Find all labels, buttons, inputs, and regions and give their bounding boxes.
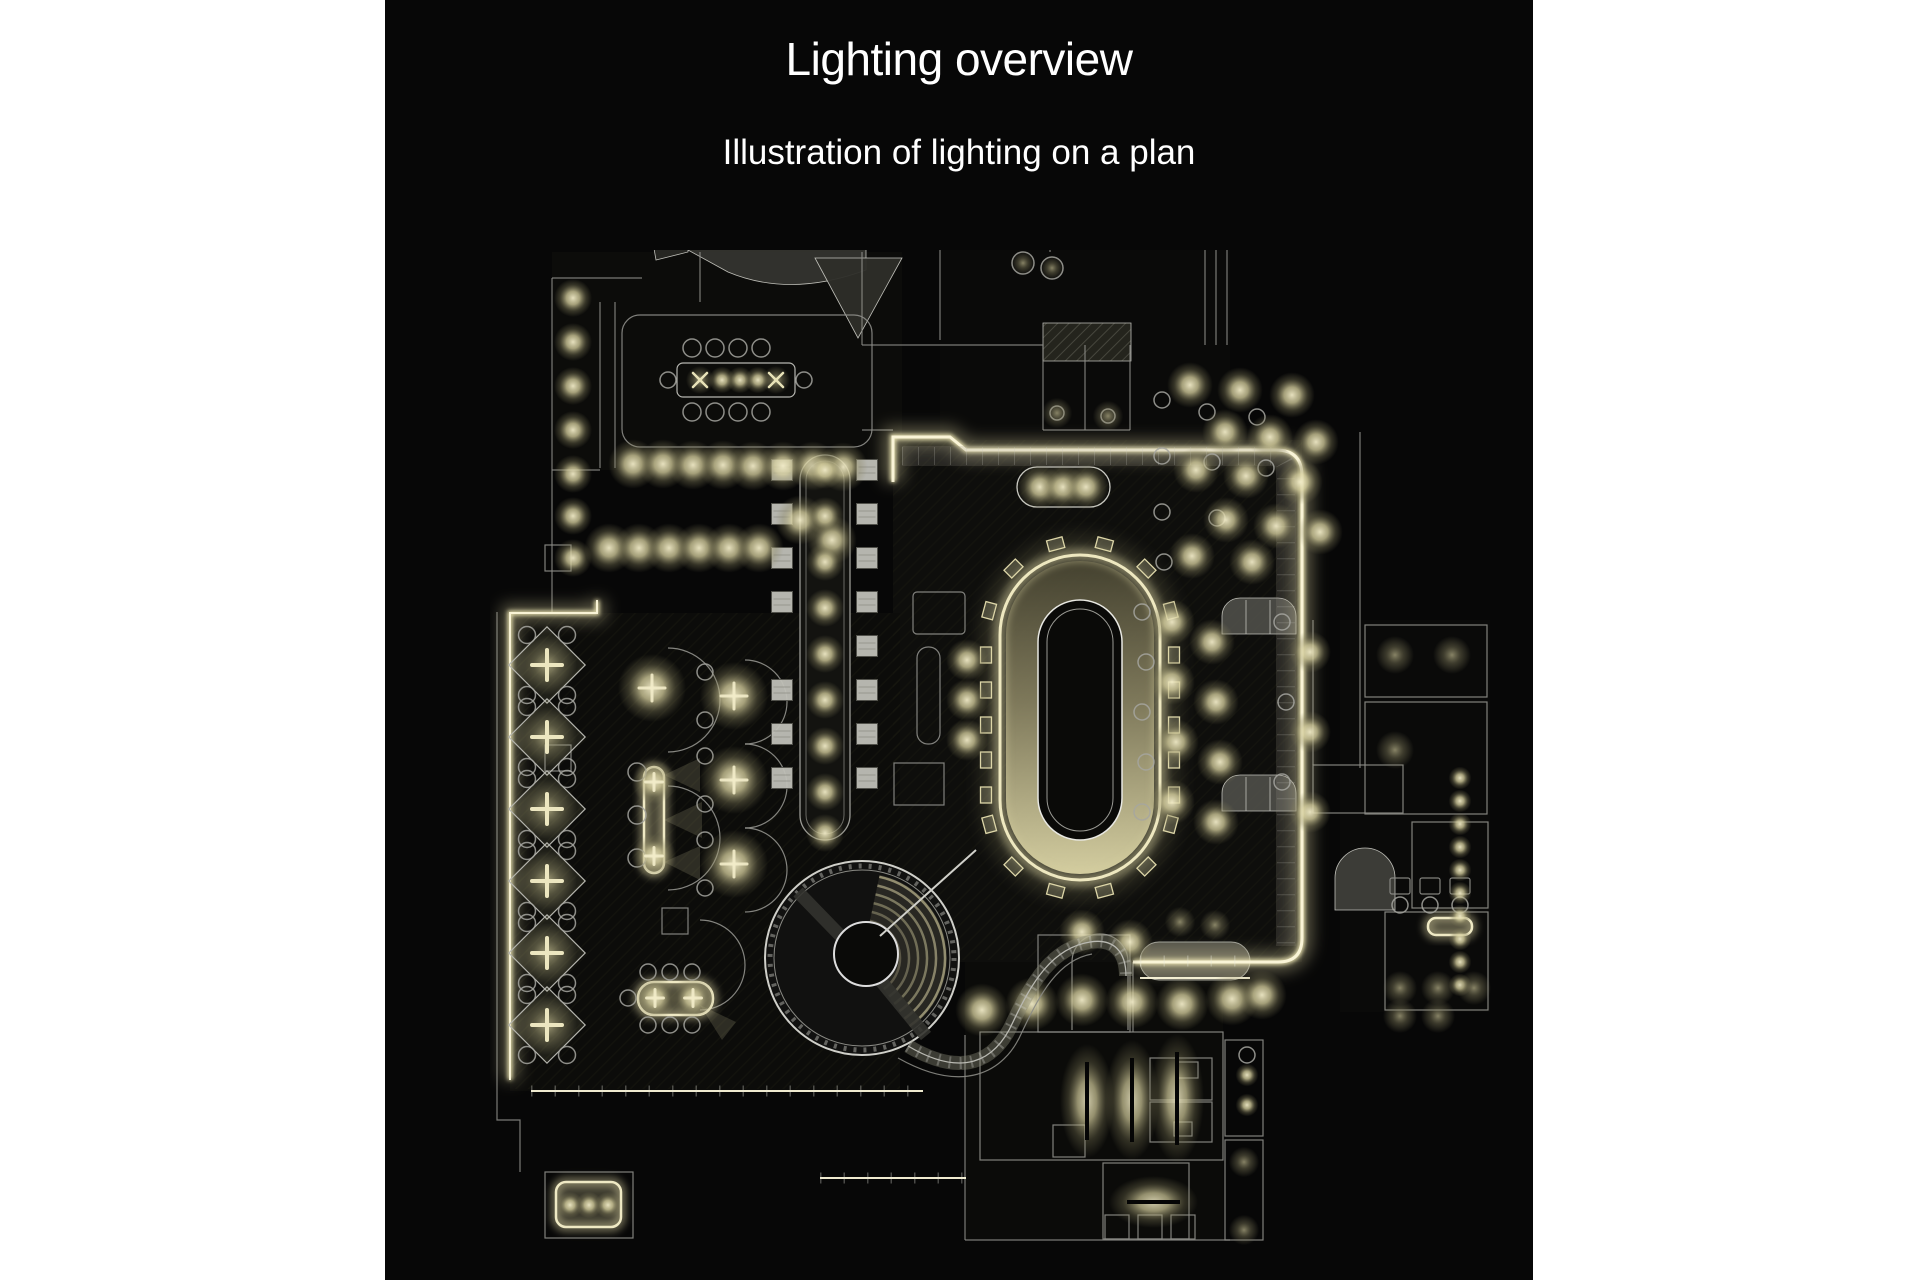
lighting-plan (490, 250, 1500, 1250)
page-title: Lighting overview (385, 34, 1533, 85)
lighting-plan-illustration (490, 250, 1500, 1250)
page-subtitle: Illustration of lighting on a plan (385, 134, 1533, 173)
slide-background: Lighting overview Illustration of lighti… (385, 0, 1533, 1280)
